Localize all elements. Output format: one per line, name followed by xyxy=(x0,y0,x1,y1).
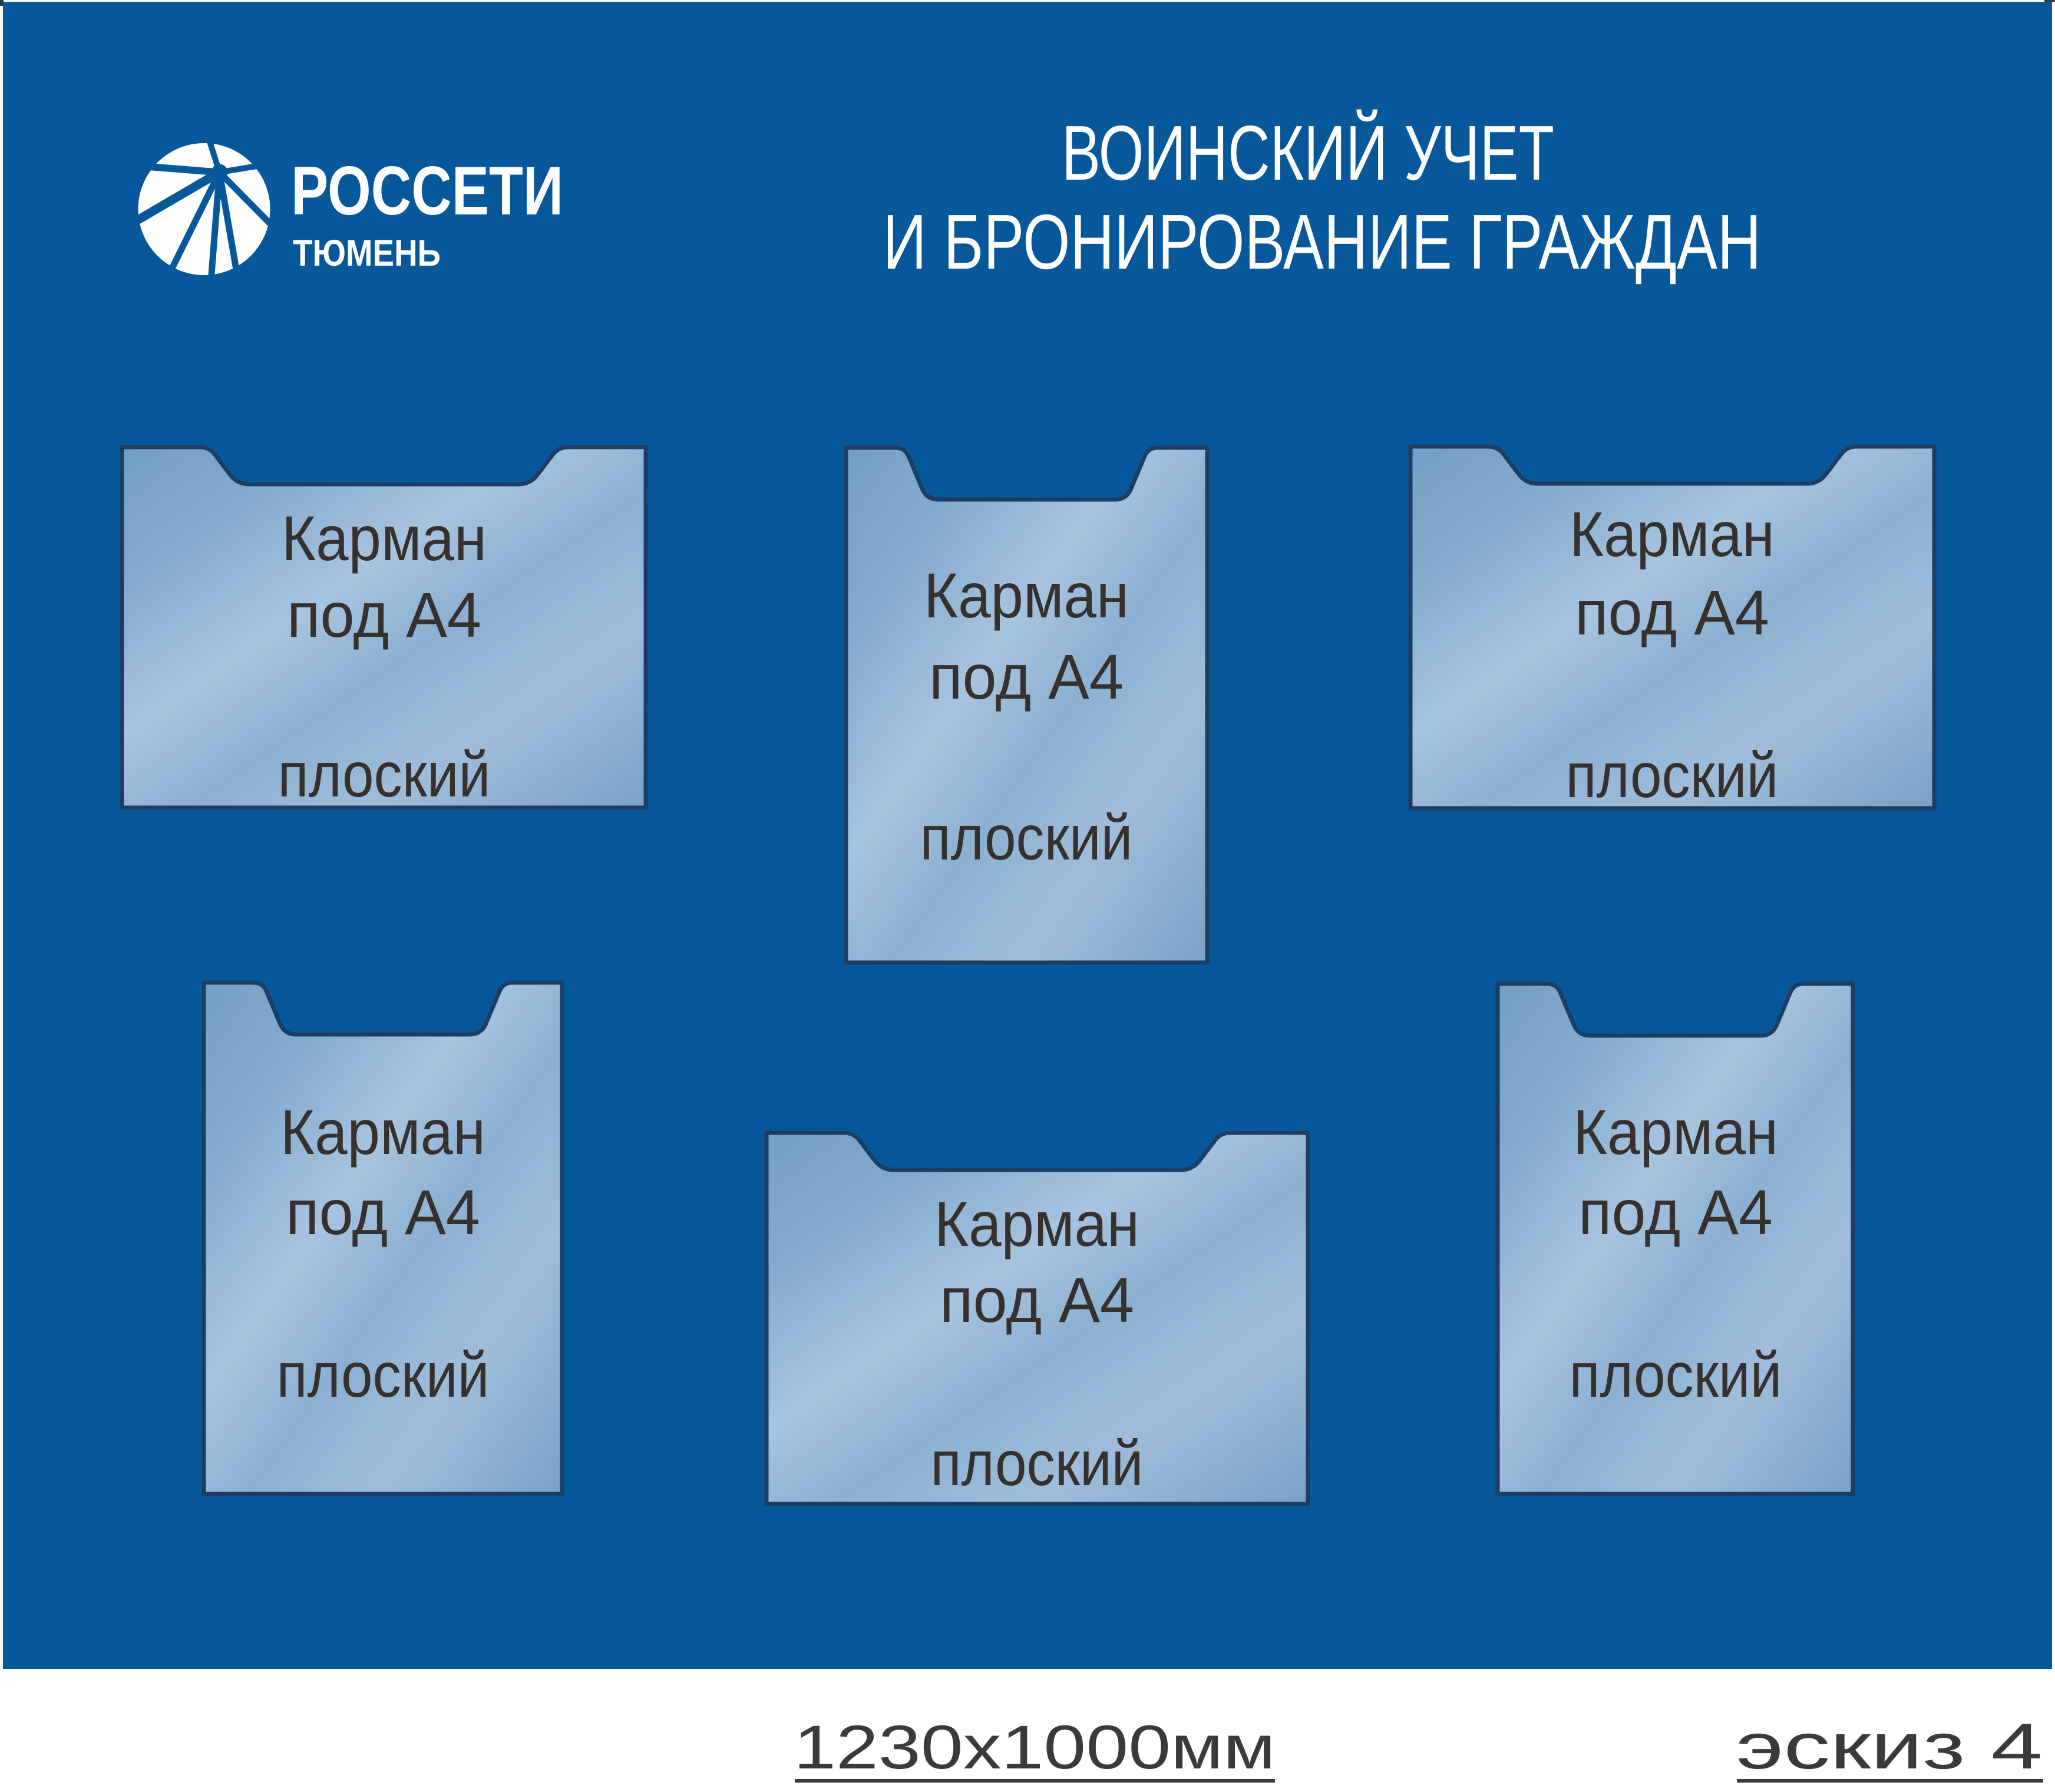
svg-text:под А4: под А4 xyxy=(287,579,481,650)
svg-text:под А4: под А4 xyxy=(286,1176,480,1248)
svg-text:ВОИНСКИЙ УЧЕТ: ВОИНСКИЙ УЧЕТ xyxy=(1062,109,1554,196)
svg-text:под А4: под А4 xyxy=(1578,1176,1773,1248)
svg-text:плоский: плоский xyxy=(1570,1339,1782,1410)
svg-text:под А4: под А4 xyxy=(1575,577,1769,648)
svg-text:под А4: под А4 xyxy=(940,1264,1134,1335)
svg-text:Карман: Карман xyxy=(934,1188,1139,1259)
svg-text:под А4: под А4 xyxy=(929,641,1124,712)
svg-text:эскиз 4: эскиз 4 xyxy=(1736,1710,2043,1783)
svg-text:Карман: Карман xyxy=(280,1096,485,1168)
svg-text:плоский: плоский xyxy=(1566,739,1779,811)
svg-text:плоский: плоский xyxy=(277,1339,490,1410)
svg-text:Карман: Карман xyxy=(282,502,487,574)
svg-text:РОССЕТИ: РОССЕТИ xyxy=(291,152,563,229)
svg-text:плоский: плоский xyxy=(931,1427,1144,1499)
svg-text:плоский: плоский xyxy=(278,739,491,810)
svg-text:И БРОНИРОВАНИЕ ГРАЖДАН: И БРОНИРОВАНИЕ ГРАЖДАН xyxy=(883,199,1762,285)
svg-text:Карман: Карман xyxy=(1570,498,1775,570)
svg-text:Карман: Карман xyxy=(1573,1096,1778,1168)
svg-text:плоский: плоский xyxy=(920,802,1133,873)
svg-text:1230x1000мм: 1230x1000мм xyxy=(794,1713,1276,1782)
svg-text:Карман: Карман xyxy=(924,560,1129,631)
svg-text:ТЮМЕНЬ: ТЮМЕНЬ xyxy=(293,233,441,274)
